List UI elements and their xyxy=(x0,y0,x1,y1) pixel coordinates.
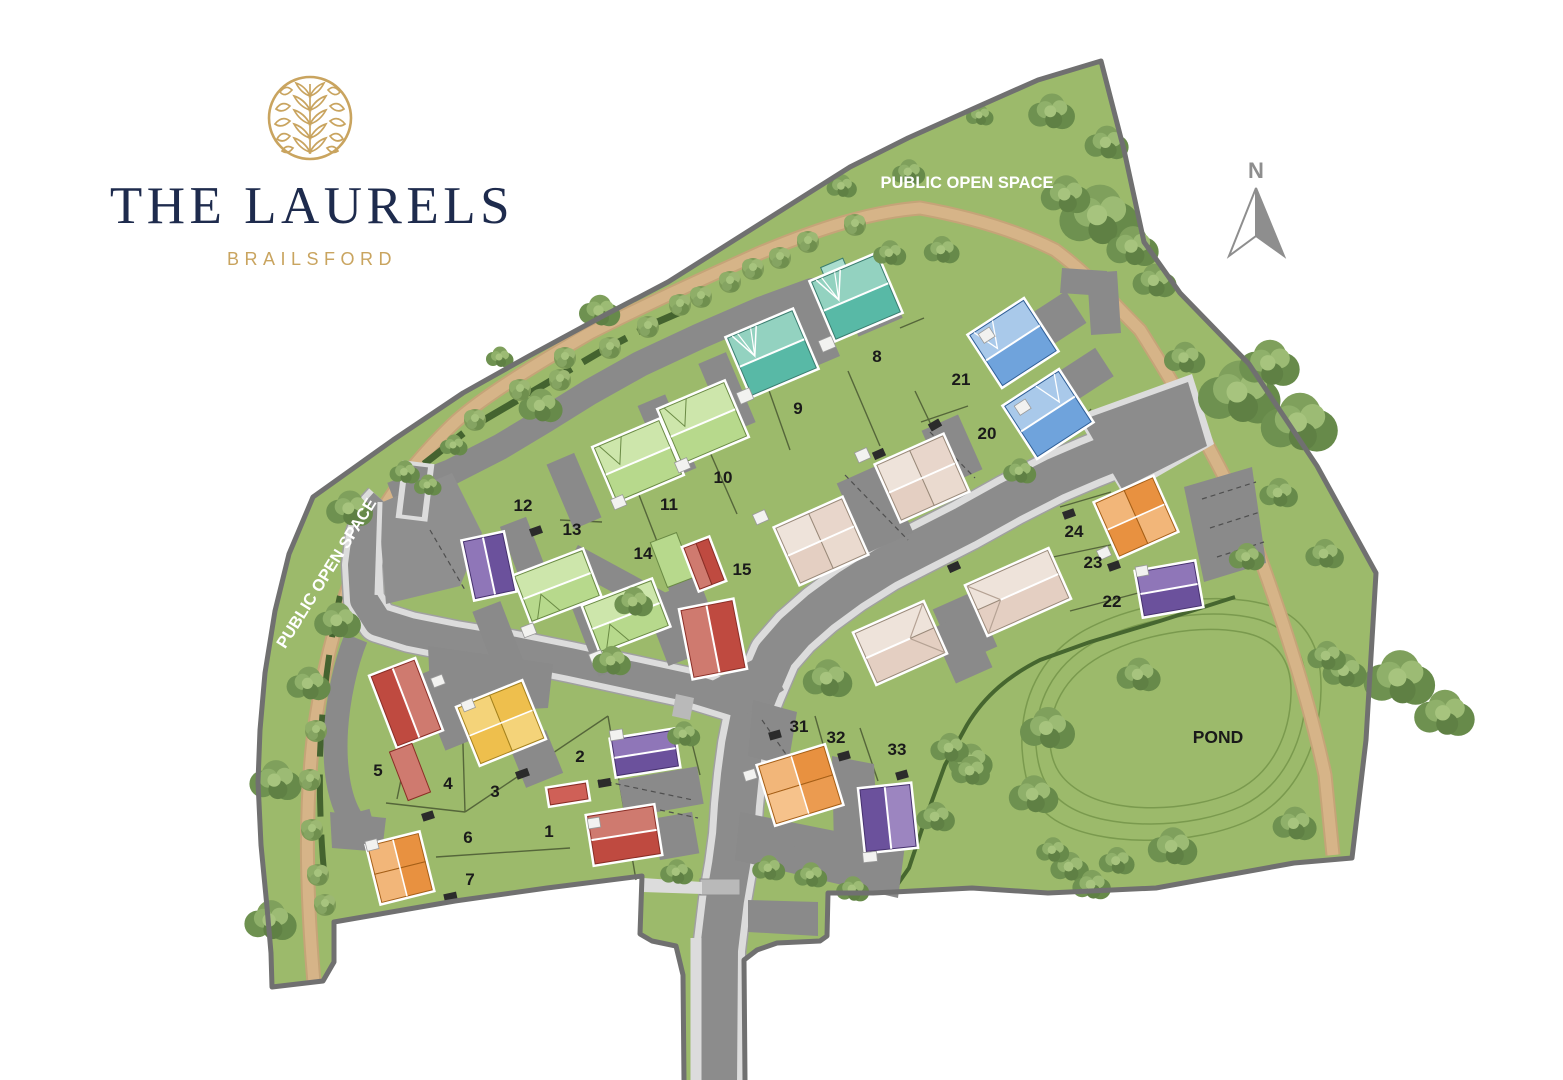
svg-text:2: 2 xyxy=(575,747,584,766)
svg-text:20: 20 xyxy=(978,424,997,443)
svg-text:PUBLIC OPEN SPACE: PUBLIC OPEN SPACE xyxy=(881,174,1054,192)
svg-text:21: 21 xyxy=(952,370,971,389)
svg-text:14: 14 xyxy=(634,544,653,563)
svg-text:5: 5 xyxy=(373,761,382,780)
svg-text:BRAILSFORD: BRAILSFORD xyxy=(227,249,397,269)
svg-text:1: 1 xyxy=(544,822,553,841)
svg-text:33: 33 xyxy=(888,740,907,759)
svg-text:32: 32 xyxy=(827,728,846,747)
svg-text:15: 15 xyxy=(733,560,752,579)
svg-text:24: 24 xyxy=(1065,522,1084,541)
svg-text:8: 8 xyxy=(872,347,881,366)
svg-text:9: 9 xyxy=(793,399,802,418)
svg-text:10: 10 xyxy=(714,468,733,487)
svg-text:31: 31 xyxy=(790,717,809,736)
svg-text:13: 13 xyxy=(563,520,582,539)
svg-text:THE LAURELS: THE LAURELS xyxy=(110,177,514,235)
svg-text:7: 7 xyxy=(465,870,474,889)
svg-text:22: 22 xyxy=(1103,592,1122,611)
svg-text:11: 11 xyxy=(660,495,678,514)
svg-text:POND: POND xyxy=(1193,727,1244,747)
svg-text:23: 23 xyxy=(1084,553,1103,572)
svg-text:4: 4 xyxy=(443,774,453,793)
svg-text:N: N xyxy=(1248,158,1264,183)
svg-text:3: 3 xyxy=(490,782,499,801)
svg-text:12: 12 xyxy=(514,496,533,515)
svg-text:6: 6 xyxy=(463,828,472,847)
